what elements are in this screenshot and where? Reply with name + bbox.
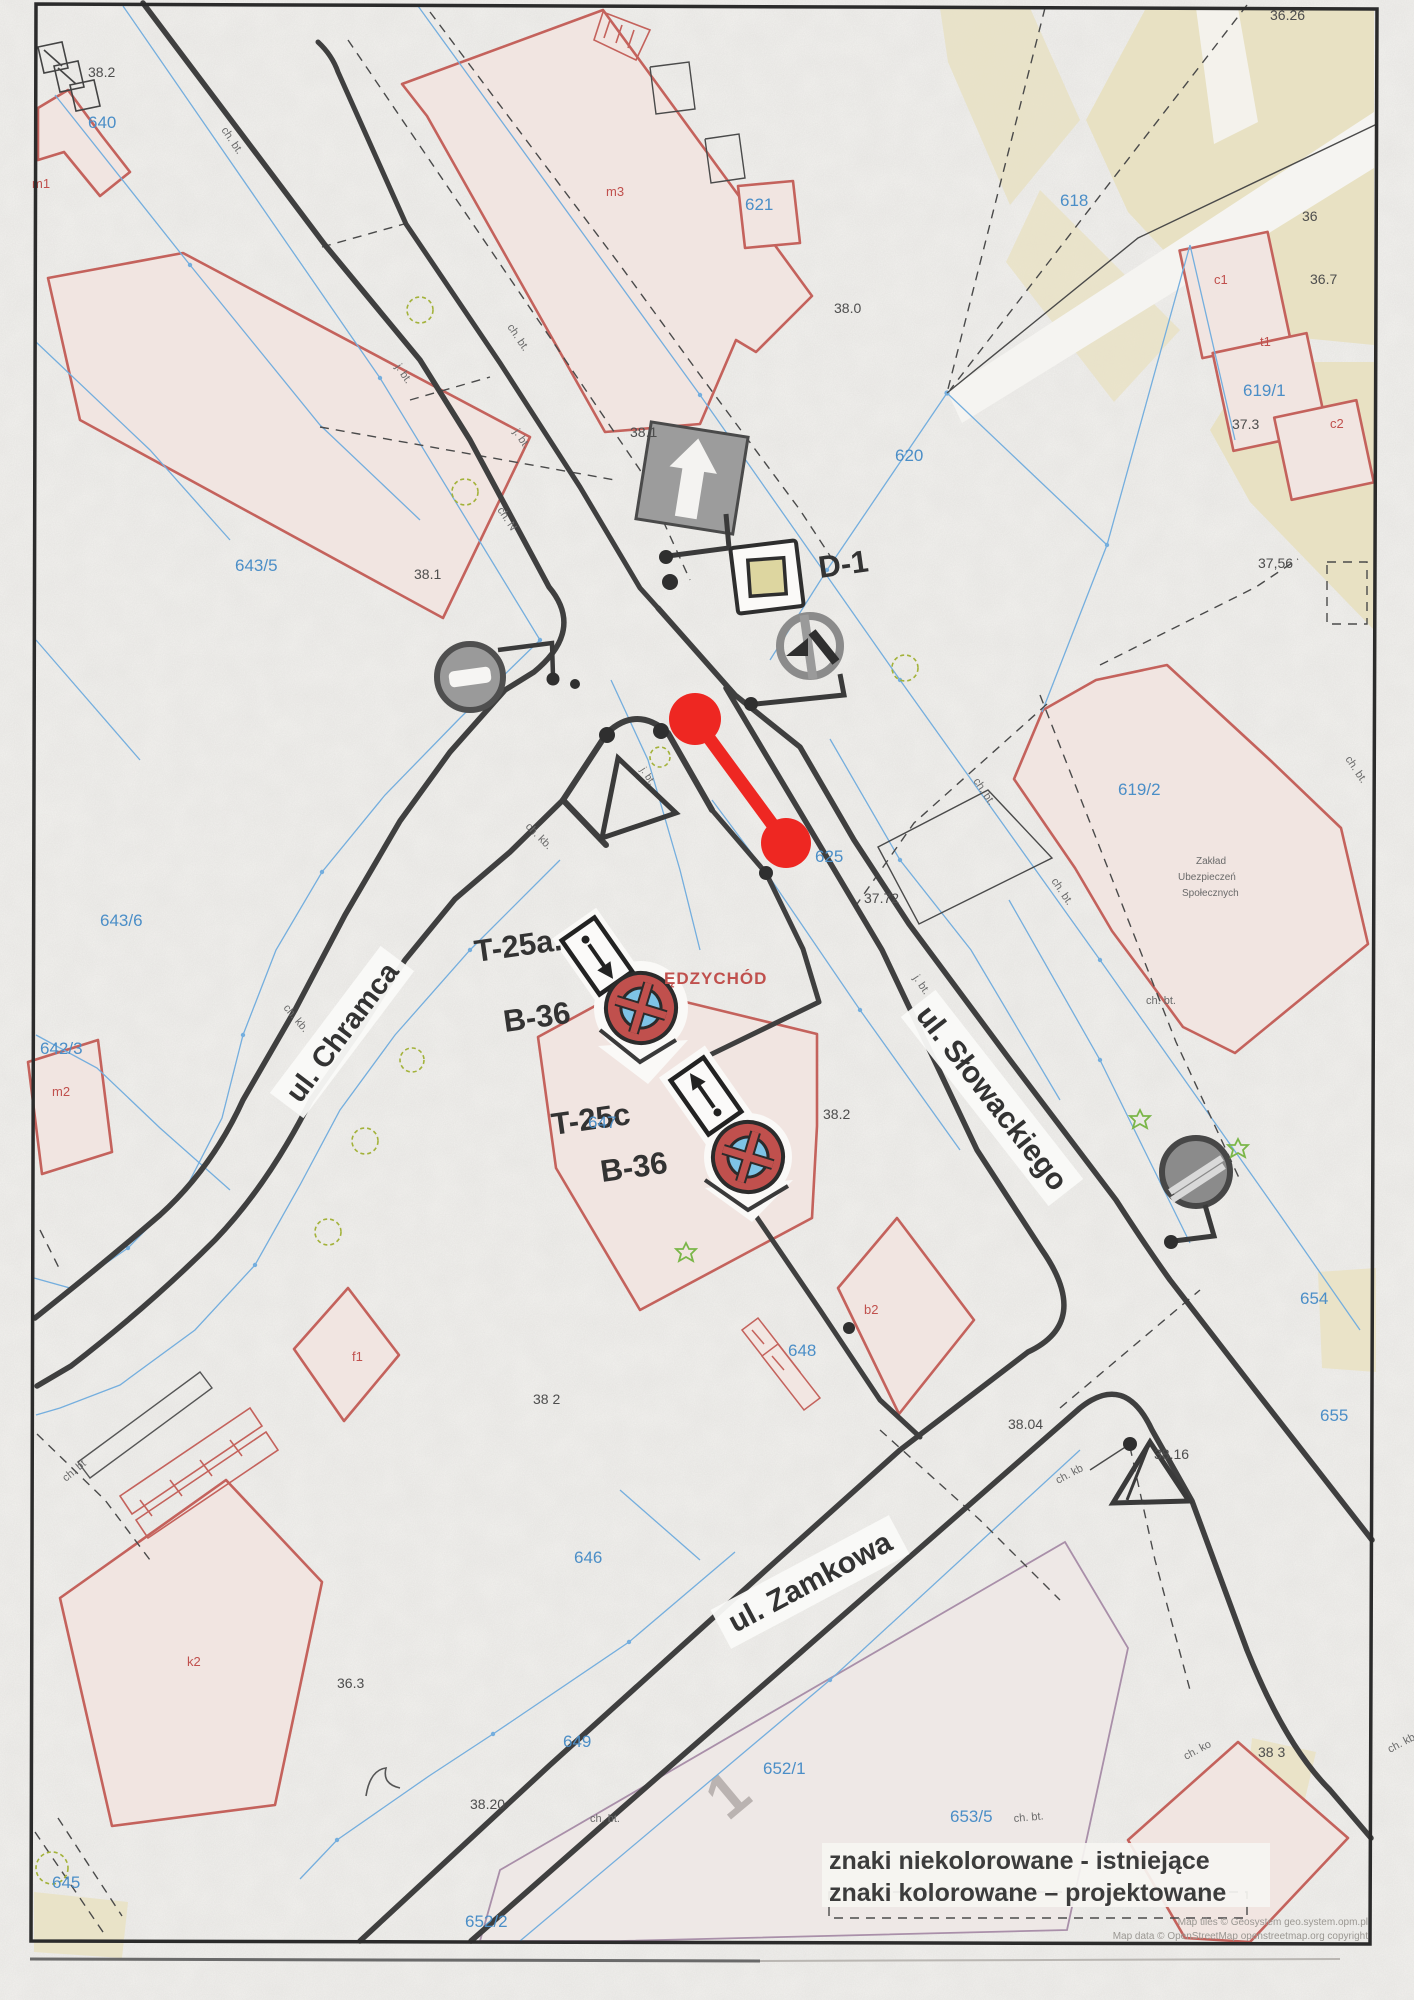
svg-text:38.04: 38.04 bbox=[1008, 1416, 1043, 1432]
svg-text:38 3: 38 3 bbox=[1258, 1744, 1285, 1760]
svg-text:652/2: 652/2 bbox=[465, 1912, 508, 1931]
svg-text:37,56: 37,56 bbox=[1258, 555, 1293, 571]
svg-text:Ubezpieczeń: Ubezpieczeń bbox=[1178, 872, 1236, 883]
svg-text:m2: m2 bbox=[52, 1084, 70, 1099]
svg-text:f1: f1 bbox=[352, 1349, 363, 1364]
svg-text:654: 654 bbox=[1300, 1289, 1328, 1308]
svg-text:652/1: 652/1 bbox=[763, 1759, 806, 1778]
svg-text:Map tiles © Geosystem geo.syst: Map tiles © Geosystem geo.system.opm.pl bbox=[1178, 1917, 1368, 1928]
svg-text:648: 648 bbox=[788, 1341, 816, 1360]
svg-text:36.3: 36.3 bbox=[337, 1675, 364, 1691]
svg-text:37.72: 37.72 bbox=[864, 890, 899, 906]
svg-text:645: 645 bbox=[52, 1873, 80, 1892]
svg-text:653/5: 653/5 bbox=[950, 1807, 993, 1826]
svg-text:621: 621 bbox=[745, 195, 773, 214]
svg-text:643/5: 643/5 bbox=[235, 556, 278, 575]
svg-text:655: 655 bbox=[1320, 1406, 1348, 1425]
svg-text:38.16: 38.16 bbox=[1154, 1446, 1189, 1462]
svg-text:38.20: 38.20 bbox=[470, 1796, 505, 1812]
svg-text:36: 36 bbox=[1302, 208, 1318, 224]
svg-text:642/3: 642/3 bbox=[40, 1039, 83, 1058]
svg-text:Zakład: Zakład bbox=[1196, 856, 1226, 867]
svg-text:620: 620 bbox=[895, 446, 923, 465]
svg-text:625: 625 bbox=[815, 847, 843, 866]
svg-text:c1: c1 bbox=[1214, 272, 1228, 287]
svg-text:ch. bt.: ch. bt. bbox=[1146, 995, 1176, 1007]
svg-text:c2: c2 bbox=[1330, 416, 1344, 431]
svg-text:38.2: 38.2 bbox=[88, 64, 115, 80]
svg-text:640: 640 bbox=[88, 113, 116, 132]
svg-text:38.0: 38.0 bbox=[834, 300, 861, 316]
svg-text:649: 649 bbox=[563, 1732, 591, 1751]
svg-text:619/1: 619/1 bbox=[1243, 381, 1286, 400]
svg-text:b2: b2 bbox=[864, 1302, 878, 1317]
svg-text:647: 647 bbox=[588, 1113, 616, 1132]
svg-text:38 2: 38 2 bbox=[533, 1391, 560, 1407]
svg-text:m3: m3 bbox=[606, 184, 624, 199]
svg-text:znaki kolorowane – projektowan: znaki kolorowane – projektowane bbox=[829, 1879, 1226, 1907]
svg-text:Społecznych: Społecznych bbox=[1182, 888, 1239, 899]
svg-text:38.1: 38.1 bbox=[414, 566, 441, 582]
svg-text:Map data © OpenStreetMap opens: Map data © OpenStreetMap openstreetmap.o… bbox=[1113, 1931, 1369, 1942]
svg-text:D-1: D-1 bbox=[816, 543, 870, 585]
svg-text:618: 618 bbox=[1060, 191, 1088, 210]
svg-text:38.1: 38.1 bbox=[630, 424, 657, 440]
svg-text:619/2: 619/2 bbox=[1118, 780, 1161, 799]
svg-text:ch. bt.: ch. bt. bbox=[590, 1813, 620, 1825]
svg-text:646: 646 bbox=[574, 1548, 602, 1567]
svg-text:36.7: 36.7 bbox=[1310, 271, 1337, 287]
svg-text:znaki niekolorowane - istnieją: znaki niekolorowane - istniejące bbox=[829, 1847, 1210, 1875]
svg-text:38.2: 38.2 bbox=[823, 1106, 850, 1122]
svg-text:37.3: 37.3 bbox=[1232, 416, 1259, 432]
svg-text:643/6: 643/6 bbox=[100, 911, 143, 930]
svg-text:t1: t1 bbox=[1260, 334, 1271, 349]
svg-text:k2: k2 bbox=[187, 1654, 201, 1669]
svg-text:ĘDZYCHÓD: ĘDZYCHÓD bbox=[664, 969, 767, 988]
